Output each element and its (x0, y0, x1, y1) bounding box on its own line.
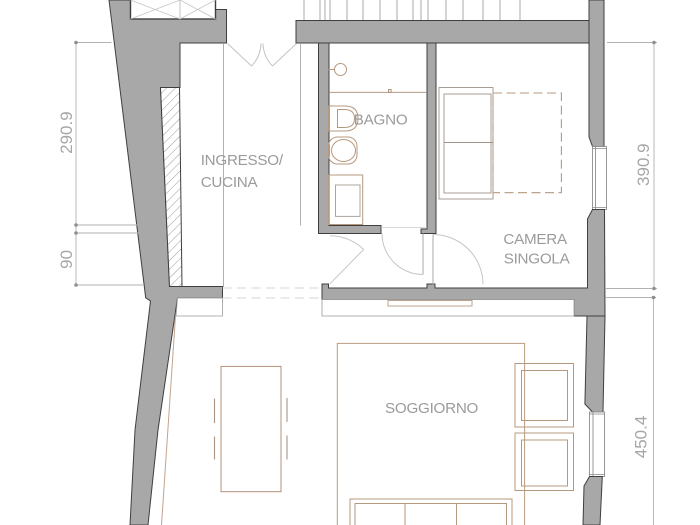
svg-text:CUCINA: CUCINA (201, 174, 259, 191)
svg-text:SOGGIORNO: SOGGIORNO (385, 400, 479, 417)
svg-text:290.9: 290.9 (57, 111, 76, 154)
svg-text:BAGNO: BAGNO (354, 111, 408, 128)
svg-text:CAMERA: CAMERA (503, 231, 568, 248)
svg-text:INGRESSO/: INGRESSO/ (201, 152, 284, 169)
svg-text:90: 90 (57, 250, 76, 269)
svg-text:SINGOLA: SINGOLA (504, 250, 571, 267)
svg-text:390.9: 390.9 (634, 143, 653, 186)
svg-text:450.4: 450.4 (631, 416, 650, 459)
